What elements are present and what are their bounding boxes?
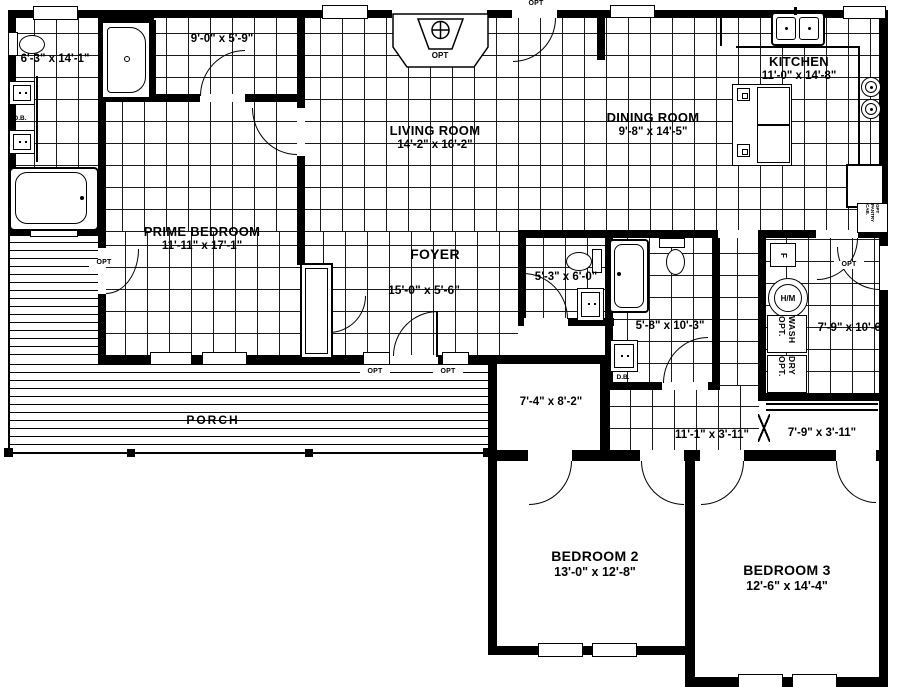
window xyxy=(538,643,583,657)
pantry-label: OPT PANTRY CAB. xyxy=(865,204,880,232)
water-heater-label: H/M xyxy=(781,294,796,303)
room-dims: 9'-8" x 14'-5" xyxy=(573,126,733,140)
closet-shelf-line xyxy=(766,403,878,405)
wall xyxy=(758,393,888,401)
dryer-box: DRY OPT. xyxy=(767,355,807,393)
room-label-kitchen: KITCHEN 11'-0" x 14'-8" xyxy=(719,54,879,83)
counter-edge xyxy=(720,18,722,46)
opt-label-top-door: OPT xyxy=(521,0,551,8)
wall-opening xyxy=(524,318,568,326)
fireplace xyxy=(392,13,489,69)
window xyxy=(843,6,886,19)
faucet xyxy=(794,7,797,15)
wall-stub xyxy=(597,18,605,60)
wall-opening xyxy=(640,450,684,461)
wall xyxy=(712,230,720,390)
porch-deck xyxy=(10,364,488,452)
room-dims-foyer: 15'-0" x 5'-6" xyxy=(344,283,504,297)
water-heater: H/M xyxy=(774,284,802,312)
wall xyxy=(685,677,888,687)
furnace: F xyxy=(770,243,796,267)
door-arc xyxy=(701,461,744,505)
window xyxy=(738,674,783,687)
room-dims: 11'-0" x 14'-8" xyxy=(719,70,879,84)
bathtub-inner xyxy=(15,172,87,224)
refrigerator xyxy=(846,164,884,208)
window xyxy=(442,352,469,365)
room-dims-utility: 7'-9" x 10'-6" xyxy=(792,322,903,336)
room-label-prime-bedroom: PRIME BEDROOM 11'-11" x 17'-1" xyxy=(122,224,282,253)
furnace-label: F xyxy=(778,253,787,258)
wall xyxy=(152,94,202,102)
wall-opening xyxy=(98,248,106,294)
room-name-foyer: FOYER xyxy=(395,246,475,263)
room-dims-hall-closet: 7'-9" x 3'-11" xyxy=(752,427,892,441)
room-name: KITCHEN xyxy=(719,54,879,70)
window xyxy=(202,352,247,365)
floor-plan-canvas: OPT PANTRY CAB. F H/M WASH OPT. DRY OPT.… xyxy=(0,0,903,687)
shower-drain xyxy=(124,56,130,62)
porch-post xyxy=(4,448,13,457)
opt-label-deck-door: OPT xyxy=(89,259,119,267)
wall xyxy=(488,461,497,655)
room-dims: 12'-6" x 14'-4" xyxy=(707,579,867,594)
room-label-dining: DINING ROOM 9'-8" x 14'-5" xyxy=(573,110,733,139)
window xyxy=(592,643,637,657)
opt-label-utility-door: OPT xyxy=(834,261,864,269)
room-label-bedroom3: BEDROOM 3 12'-6" x 14'-4" xyxy=(707,562,867,594)
door-arc xyxy=(529,461,572,505)
door-arc xyxy=(836,461,876,503)
wall-opening xyxy=(836,450,876,461)
wall-opening xyxy=(700,450,744,461)
wall xyxy=(685,450,695,686)
room-dims-half-bath: 5'-3" x 6'-0" xyxy=(506,271,626,285)
room-name-porch: PORCH xyxy=(153,413,273,427)
opt-label-porch-window2: OPT xyxy=(433,368,463,376)
toilet-tank xyxy=(592,249,602,273)
room-dims: 14'-2" x 16'-2" xyxy=(355,139,515,153)
porch-post xyxy=(305,449,313,457)
porch-edge-left xyxy=(8,234,10,454)
coat-closet-inner xyxy=(305,268,328,354)
window xyxy=(33,6,78,20)
counter-edge xyxy=(736,46,858,48)
room-dims-flex: 7'-4" x 8'-2" xyxy=(491,396,611,410)
window xyxy=(792,674,837,687)
porch-edge-bottom xyxy=(6,452,490,454)
wall-opening xyxy=(816,230,858,238)
sink-bowl xyxy=(799,17,819,40)
vanity-sink xyxy=(9,81,35,105)
room-name: LIVING ROOM xyxy=(355,123,515,139)
room-dims-walkin-closet: 9'-0" x 5'-9" xyxy=(162,33,282,47)
island-fixture xyxy=(737,144,750,157)
toilet-tank xyxy=(659,238,685,248)
room-dims-full-bath: 5'-8" x 10'-3" xyxy=(610,320,730,334)
tub-drain xyxy=(80,196,84,200)
toilet-bowl xyxy=(566,252,592,271)
door-arc xyxy=(641,461,684,505)
vanity-sink xyxy=(610,340,638,372)
room-name: BEDROOM 2 xyxy=(515,548,675,565)
vanity-sink xyxy=(577,288,604,321)
room-dims-prime-bath: 6'-3" x 14'-1" xyxy=(5,53,105,67)
room-name: DINING ROOM xyxy=(573,110,733,126)
pantry-cabinet: OPT PANTRY CAB. xyxy=(857,203,888,233)
db-label-full-bath: D.B. xyxy=(611,374,635,382)
room-dims: 13'-0" x 12'-8" xyxy=(515,565,675,580)
wall-opening xyxy=(512,10,557,18)
room-label-living: LIVING ROOM 14'-2" x 16'-2" xyxy=(355,123,515,152)
flex-strip xyxy=(518,326,606,356)
counter-edge xyxy=(36,76,38,162)
toilet-bowl xyxy=(19,35,45,54)
room-label-bedroom2: BEDROOM 2 13'-0" x 12'-8" xyxy=(515,548,675,580)
dryer-label: DRY OPT. xyxy=(777,356,797,392)
vanity-sink xyxy=(9,130,35,154)
window xyxy=(610,5,655,18)
sink-bowl xyxy=(776,17,796,40)
wall xyxy=(488,646,694,655)
wall-opening xyxy=(390,355,438,364)
room-dims: 11'-11" x 17'-1" xyxy=(122,240,282,254)
island-divider xyxy=(758,124,789,126)
wall-opening xyxy=(880,246,888,290)
wall-opening xyxy=(662,382,708,390)
wall-opening xyxy=(718,230,758,238)
window xyxy=(322,5,368,19)
window xyxy=(150,352,192,365)
toilet-bowl xyxy=(666,249,685,275)
island-fixture xyxy=(737,88,750,101)
range-burner xyxy=(861,99,881,119)
porch-post xyxy=(127,449,135,457)
room-name: BEDROOM 3 xyxy=(707,562,867,579)
wall xyxy=(758,238,766,398)
side-deck xyxy=(10,234,98,358)
wall-opening xyxy=(297,108,305,156)
db-label-prime-bath: D.B. xyxy=(8,115,32,123)
room-name: PRIME BEDROOM xyxy=(122,224,282,240)
opt-label-fireplace: OPT xyxy=(425,51,455,61)
closet-shelf-line xyxy=(766,409,878,411)
wall xyxy=(245,94,305,102)
wall-opening xyxy=(528,450,572,461)
door-leaf xyxy=(436,311,438,357)
window xyxy=(363,352,390,365)
opt-label-porch-window1: OPT xyxy=(360,368,390,376)
